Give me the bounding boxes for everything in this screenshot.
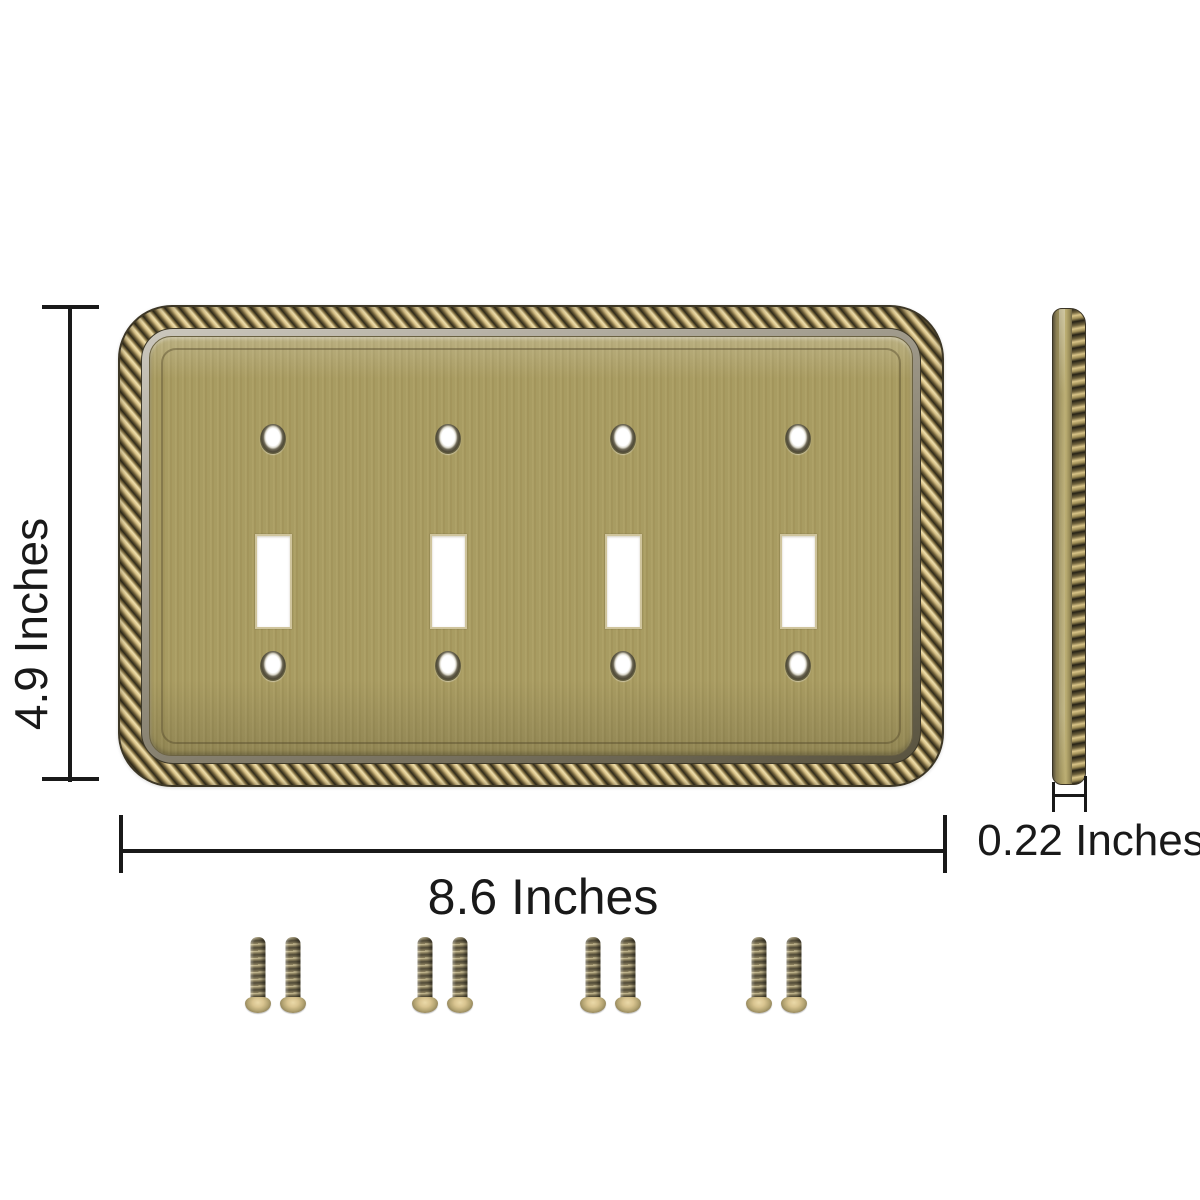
width-dimension-label: 8.6 Inches: [428, 872, 659, 922]
screw-head: [580, 997, 606, 1013]
screw-hole-top-4: [785, 424, 811, 454]
screw-thread: [752, 937, 767, 999]
screw-hole-top-3: [610, 424, 636, 454]
side-profile-sheen: [1059, 309, 1065, 784]
height-dimension-label: 4.9 Inches: [8, 518, 54, 730]
width-dimension-tick-right: [943, 815, 947, 873]
depth-dimension-line: [1052, 794, 1087, 797]
screw-thread: [621, 937, 636, 999]
product-dimension-diagram: 4.9 Inches 8.6 Inches 0.22 Inches: [0, 0, 1200, 1200]
screw-thread: [453, 937, 468, 999]
mounting-screw-8: [779, 937, 809, 1013]
depth-dimension-tick-left: [1052, 782, 1055, 812]
screw-thread: [787, 937, 802, 999]
screw-hole-top-1: [260, 424, 286, 454]
screw-hole-bottom-3: [610, 651, 636, 681]
screw-head: [245, 997, 271, 1013]
mounting-screw-5: [578, 937, 608, 1013]
screw-thread: [286, 937, 301, 999]
screw-head: [781, 997, 807, 1013]
screw-hole-bottom-4: [785, 651, 811, 681]
screw-thread: [418, 937, 433, 999]
screw-hole-top-2: [435, 424, 461, 454]
screw-thread: [586, 937, 601, 999]
toggle-cutout-1: [255, 534, 292, 629]
side-profile-rope-edge: [1072, 309, 1085, 784]
width-dimension-line: [119, 849, 947, 853]
screw-head: [280, 997, 306, 1013]
mounting-screw-7: [744, 937, 774, 1013]
toggle-cutout-3: [605, 534, 642, 629]
mounting-screw-2: [278, 937, 308, 1013]
mounting-screw-1: [243, 937, 273, 1013]
side-profile-view: [1052, 308, 1086, 785]
mounting-screw-3: [410, 937, 440, 1013]
front-view-plate: [118, 305, 944, 787]
screw-head: [615, 997, 641, 1013]
mounting-screw-4: [445, 937, 475, 1013]
depth-dimension-label: 0.22 Inches: [977, 819, 1200, 863]
screw-head: [746, 997, 772, 1013]
width-dimension-tick-left: [119, 815, 123, 873]
toggle-cutout-4: [780, 534, 817, 629]
height-dimension-tick-top: [42, 305, 99, 309]
height-dimension-line: [68, 306, 72, 782]
height-dimension-tick-bottom: [42, 777, 99, 781]
plate-face: [149, 336, 913, 756]
screw-hole-bottom-2: [435, 651, 461, 681]
screw-hole-bottom-1: [260, 651, 286, 681]
screw-head: [447, 997, 473, 1013]
screw-thread: [251, 937, 266, 999]
screw-head: [412, 997, 438, 1013]
mounting-screw-6: [613, 937, 643, 1013]
toggle-cutout-2: [430, 534, 467, 629]
